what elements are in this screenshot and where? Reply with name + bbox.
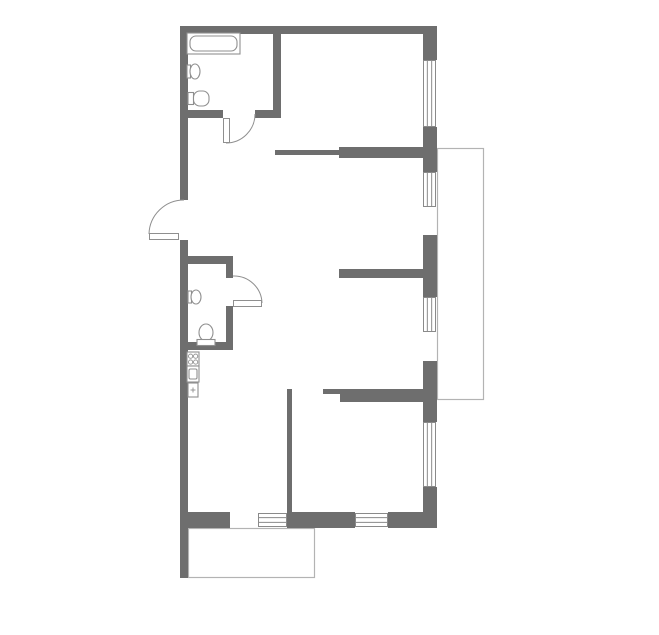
room3-bottom-thin-notch bbox=[323, 389, 340, 394]
window-right-bottom bbox=[424, 423, 436, 487]
window-right-top bbox=[424, 61, 436, 127]
window-bottom-right bbox=[356, 514, 388, 527]
bathroom-sink bbox=[190, 64, 200, 79]
wc-toilet-tank bbox=[197, 340, 215, 346]
wc-right-wall-lower bbox=[226, 306, 233, 342]
room3-bottom-wall bbox=[340, 389, 423, 402]
right-exterior-wall-seg3 bbox=[423, 235, 437, 297]
room2-bottom-wall bbox=[339, 269, 423, 278]
floor-plan bbox=[0, 0, 659, 635]
bathroom-right-wall bbox=[273, 34, 281, 118]
kitchen-partition-wall bbox=[287, 389, 292, 517]
bathroom-bottom-wall-left bbox=[188, 110, 223, 118]
bathtub-basin bbox=[190, 36, 237, 51]
bathroom-door-leaf bbox=[224, 119, 230, 143]
bathroom-toilet-tank bbox=[188, 93, 194, 105]
room1-bottom-wall bbox=[339, 147, 423, 158]
bottom-wall-right bbox=[388, 512, 437, 528]
right-exterior-wall-seg2 bbox=[423, 127, 437, 172]
plan-background bbox=[0, 0, 659, 635]
window-right-mid-upper bbox=[424, 173, 436, 207]
entrance-door-leaf bbox=[150, 234, 179, 240]
window-bottom-left bbox=[259, 514, 287, 527]
wc-right-wall-upper bbox=[226, 264, 233, 278]
oven-icon-door bbox=[189, 369, 197, 379]
wc-door-leaf bbox=[234, 301, 262, 307]
left-exterior-wall-lower bbox=[180, 240, 188, 578]
hall-top-thin-partition bbox=[275, 150, 339, 155]
right-exterior-wall-seg1 bbox=[423, 26, 437, 60]
bathroom-bottom-wall-right bbox=[255, 110, 281, 118]
wc-top-wall bbox=[188, 256, 233, 264]
right-exterior-wall-seg4 bbox=[423, 361, 437, 422]
bottom-wall-middle bbox=[287, 512, 355, 528]
window-right-mid-lower bbox=[424, 298, 436, 332]
bottom-wall-left-stub bbox=[188, 512, 230, 528]
floor-plan-canvas bbox=[0, 0, 659, 635]
bathroom-toilet-bowl bbox=[194, 91, 210, 106]
wc-sink bbox=[191, 290, 201, 304]
wc-toilet-bowl bbox=[199, 324, 213, 341]
